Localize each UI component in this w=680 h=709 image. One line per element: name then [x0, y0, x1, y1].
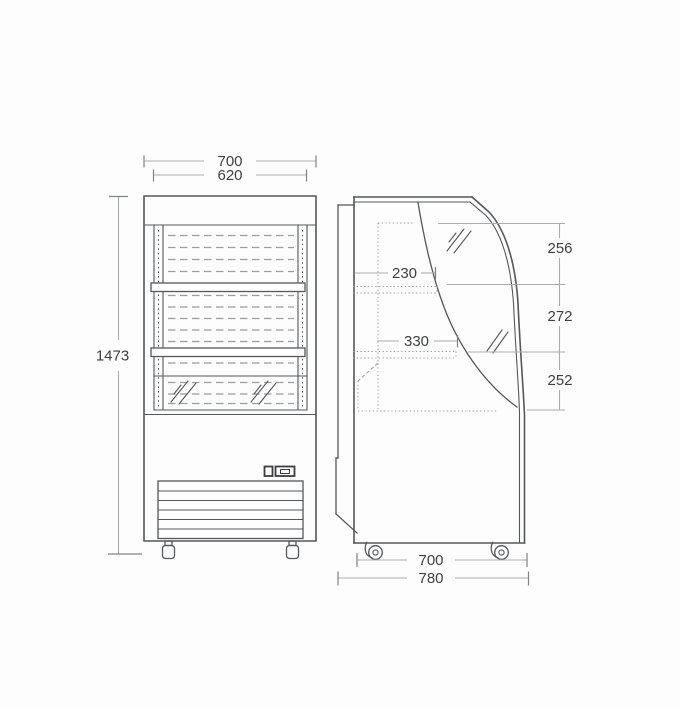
- side-caster-left: [365, 543, 382, 560]
- side-glass-curve-inner: [470, 202, 520, 543]
- dim-label-230: 230: [392, 265, 417, 282]
- thermostat-display[interactable]: [276, 467, 295, 477]
- front-view: 1473 700 620: [96, 153, 316, 559]
- dim-label-252: 252: [547, 372, 572, 389]
- dim-label-1473: 1473: [96, 348, 129, 365]
- dim-label-256: 256: [547, 240, 572, 257]
- front-back-panel-perforations: [168, 236, 294, 404]
- dim-label-620: 620: [217, 167, 242, 184]
- side-view: 230 330 256 272 252: [336, 197, 573, 587]
- front-caster-left: [163, 541, 175, 559]
- side-body-outline: [354, 197, 525, 543]
- power-switch[interactable]: [265, 467, 273, 477]
- drawing-canvas: 1473 700 620: [0, 0, 680, 709]
- dim-label-330: 330: [404, 333, 429, 350]
- side-interior-dotted-lines: [353, 223, 497, 411]
- dim-front-inner-width: 620: [154, 167, 307, 184]
- dim-front-height: 1473: [96, 197, 142, 555]
- side-caster-right: [491, 543, 508, 560]
- front-glass-panel: [154, 376, 307, 404]
- front-shelf-bar-1: [151, 283, 305, 292]
- front-louver-grille: [158, 481, 303, 539]
- technical-drawing: 1473 700 620: [0, 0, 680, 709]
- glass-hatch-icon: [171, 381, 276, 404]
- dim-label-272: 272: [547, 308, 572, 325]
- front-shelf-bar-2: [151, 348, 305, 357]
- front-caster-right: [287, 541, 299, 559]
- dim-side-depth-overall: 780: [338, 570, 529, 587]
- dim-label-780: 780: [418, 570, 443, 587]
- dim-side-shelf-depth-lower: 330: [377, 333, 458, 350]
- dim-label-700-bottom: 700: [418, 552, 443, 569]
- dim-side-shelf-depth-upper: 230: [355, 265, 436, 282]
- control-panel: [265, 467, 295, 477]
